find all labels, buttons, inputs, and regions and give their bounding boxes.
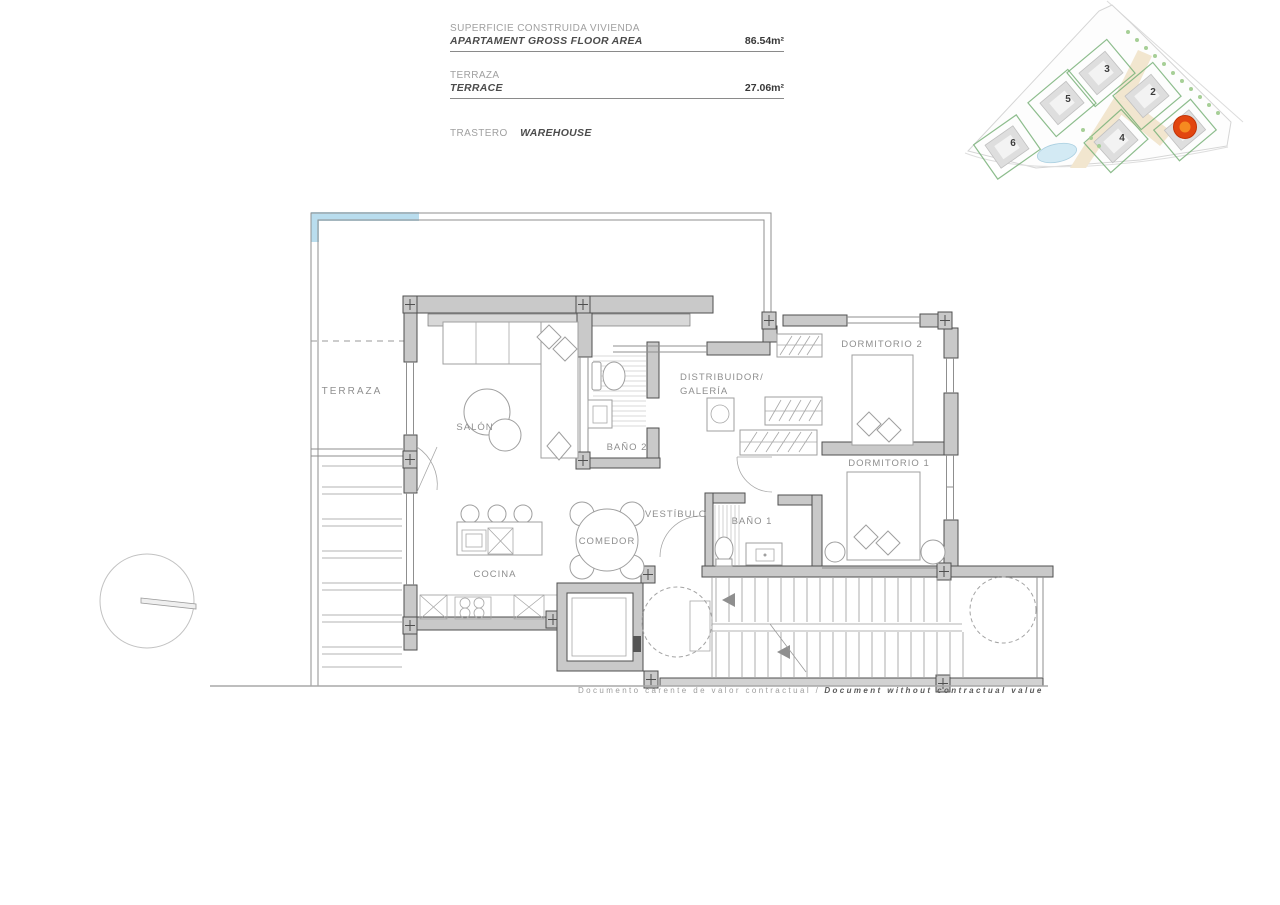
bedroom1-door	[737, 457, 772, 492]
label-bano2: BAÑO 2	[607, 442, 648, 453]
bedroom1-furniture	[825, 472, 945, 564]
kitchen-furniture	[420, 505, 557, 619]
disclaimer-es: Documento carente de valor contractual /	[578, 686, 820, 695]
site-building-number-6: 6	[1010, 138, 1016, 149]
label-terraza: TERRAZA	[322, 386, 383, 397]
disclaimer: Documento carente de valor contractual /…	[578, 686, 1044, 695]
disclaimer-en: Document without contractual value	[824, 686, 1043, 695]
stair-turning-circle-left	[642, 587, 712, 657]
terrace-stairs	[322, 466, 402, 667]
entry-door-swing	[660, 516, 701, 557]
label-galeria: GALERÍA	[680, 386, 728, 397]
gallery-closets	[707, 334, 822, 492]
label-salon: SALÓN	[456, 422, 493, 433]
entry-door-leaf	[690, 601, 710, 651]
elevator	[557, 583, 643, 671]
bathroom1-fixtures	[715, 505, 782, 566]
label-cocina: COCINA	[474, 569, 517, 580]
label-dormitorio2: DORMITORIO 2	[841, 339, 923, 350]
tree-symbol	[100, 554, 196, 648]
floor-plan-page: SUPERFICIE CONSTRUIDA VIVIENDA APARTAMEN…	[0, 0, 1280, 905]
location-marker-icon	[1174, 116, 1197, 139]
site-building-number-4: 4	[1119, 133, 1125, 144]
site-building-number-3: 3	[1104, 64, 1110, 75]
label-vestibulo: VESTÍBULO	[645, 509, 707, 520]
stair-turning-circle-right	[970, 577, 1036, 643]
site-building-number-5: 5	[1065, 94, 1071, 105]
terrace-door	[417, 447, 437, 492]
label-bano1: BAÑO 1	[732, 516, 773, 527]
bedroom2-furniture	[852, 355, 913, 445]
plan-canvas: 3 2 5 4 6	[0, 0, 1280, 905]
label-dormitorio1: DORMITORIO 1	[848, 458, 930, 469]
salon-furniture	[417, 322, 578, 492]
site-building-number-2: 2	[1150, 87, 1156, 98]
label-comedor: COMEDOR	[579, 536, 636, 547]
site-plan: 3 2 5 4 6	[965, 1, 1243, 179]
common-stairs	[642, 516, 1036, 677]
label-distribuidor: DISTRIBUIDOR/	[680, 372, 764, 383]
bathroom2-fixtures	[588, 356, 646, 428]
